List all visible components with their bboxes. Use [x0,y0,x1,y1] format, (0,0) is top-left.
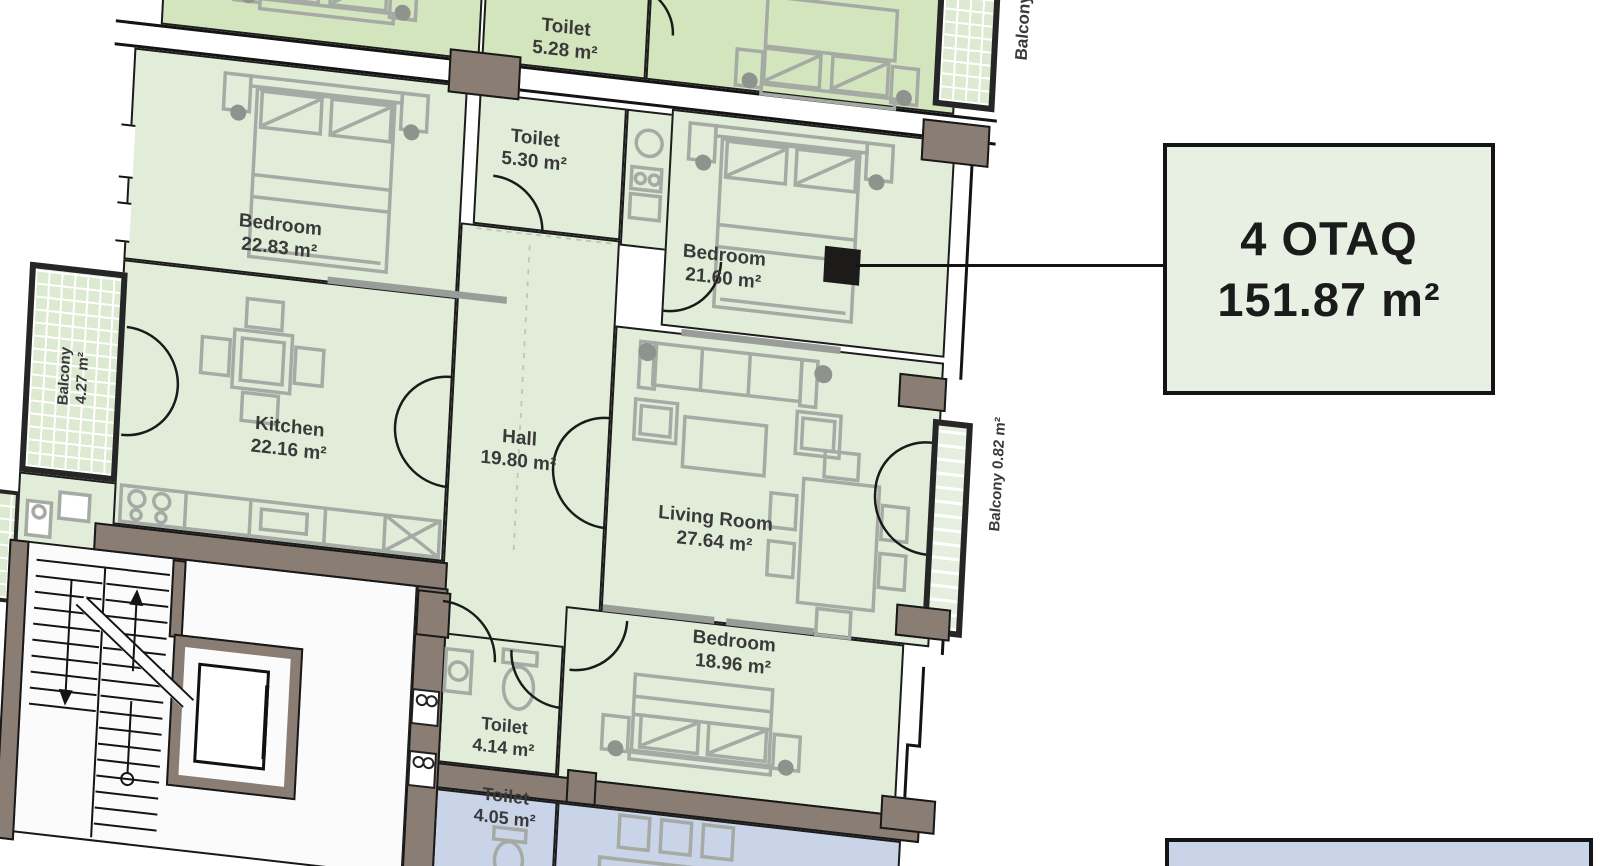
toilet-fixtures-icon [492,827,527,866]
stairs-icon [22,560,199,848]
floor-plan-canvas: Toilet5.28 m² Toilet5.30 m² Bedroom22.83… [0,0,1600,866]
room-label-bedroom-18-96: Bedroom18.96 m² [691,625,776,681]
floor-plan: Toilet5.28 m² Toilet5.30 m² Bedroom22.83… [0,0,1120,866]
room-label-toilet-405: Toilet4.05 m² [473,783,537,834]
room-label-toilet-414: Toilet4.14 m² [472,712,536,763]
room-label-bedroom-22-83: Bedroom22.83 m² [237,209,322,265]
kitchen-counter-icon [120,485,440,557]
closet-fixtures-icon [26,488,90,541]
room-label-bedroom-21-60: Bedroom21.60 m² [681,239,766,295]
dashed-guides [460,228,616,564]
kitchen-table-icon [198,294,326,430]
room-label-toilet-528: Toilet5.28 m² [532,13,600,67]
toilet-fixtures-icon [444,643,538,711]
sofa-set-icon [633,341,844,484]
unit-callout-line [856,264,1164,267]
room-label-hall: Hall19.80 m² [480,423,558,478]
dining-chairs-icon [599,813,770,866]
unit-area: 151.87 m² [1217,269,1440,330]
unit-label-box: 4 OTAQ 151.87 m² [1163,143,1495,395]
window-sill-icons [312,276,841,636]
double-bed-icon [601,671,803,778]
room-label-balcony-4-27: Balcony4.27 m² [54,346,93,408]
dining-table-icon [764,445,911,644]
double-bed-icon [681,123,893,326]
room-label-kitchen: Kitchen22.16 m² [250,411,328,466]
appliance-niche-icons [408,689,439,788]
room-label-toilet-530: Toilet5.30 m² [501,124,569,178]
unit-name: 4 OTAQ [1240,208,1417,269]
room-label-balcony-top: Balcony [1012,0,1036,61]
adjacent-unit-label-box [1165,838,1593,866]
sink-icon [629,129,664,221]
double-bed-icon [234,0,420,26]
